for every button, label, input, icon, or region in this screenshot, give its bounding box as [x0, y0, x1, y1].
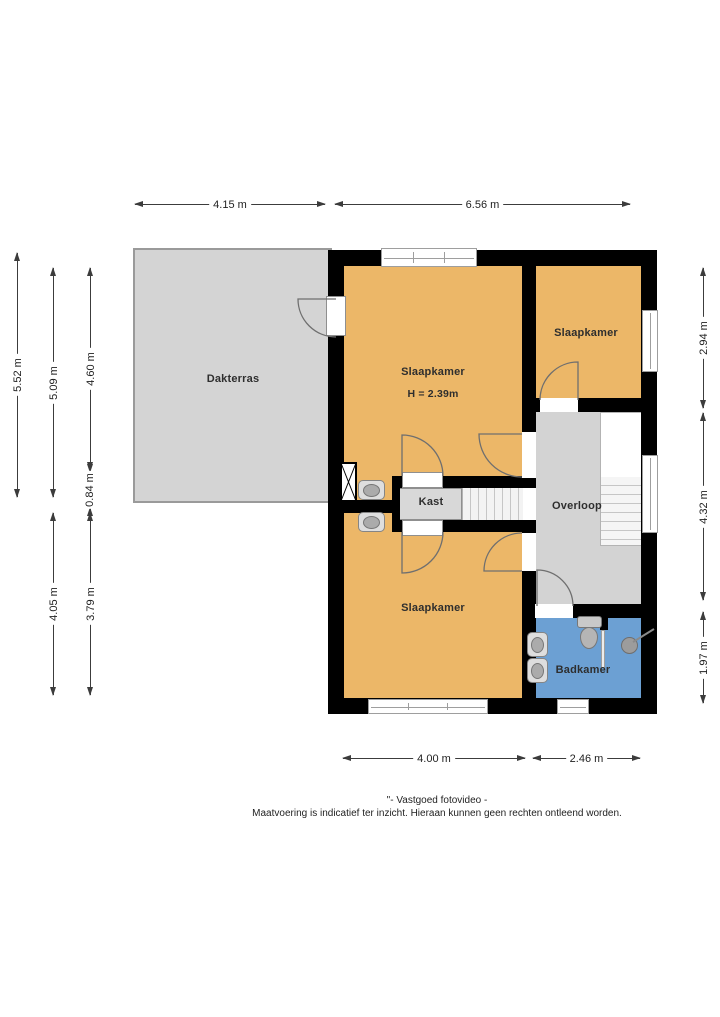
window-right-bedroom [642, 310, 658, 372]
window-tick [408, 703, 409, 710]
window-badkamer [557, 699, 589, 714]
label-badkamer: Badkamer [556, 664, 611, 676]
wall-badkamer-north-a [522, 604, 535, 618]
door-panel-dakterras [326, 296, 346, 336]
door-panel-kast-top [402, 472, 443, 488]
door-gap-badkamer [535, 604, 573, 618]
dim-left-405: 4.05 m [53, 513, 54, 695]
dim-label: 4.60 m [85, 348, 97, 390]
dim-label: 4.00 m [413, 753, 455, 765]
dim-right-294: 2.94 m [703, 268, 704, 408]
arrow-icon [700, 695, 706, 704]
wall-kast-west [392, 476, 400, 532]
arrow-icon [532, 755, 541, 761]
staircase-steps [601, 477, 641, 545]
arrow-icon [700, 592, 706, 601]
arrow-icon [317, 201, 326, 207]
window-tick [447, 703, 448, 710]
wall-overloop-west-1 [522, 398, 536, 432]
footer-disclaimer: Maatvoering is indicatief ter inzicht. H… [252, 808, 622, 819]
window-stairwell [642, 455, 658, 533]
dim-label: 4.32 m [698, 486, 710, 528]
arrow-icon [342, 755, 351, 761]
dim-label: 2.94 m [698, 317, 710, 359]
shower-head [621, 637, 638, 654]
dim-left-509: 5.09 m [53, 268, 54, 497]
sink-badkamer-1-bowl [531, 637, 544, 653]
floorplan-canvas: Dakterras Slaapkamer H = 2.39m Slaapkame… [0, 0, 720, 1017]
dim-label: 5.52 m [12, 354, 24, 396]
arrow-icon [134, 201, 143, 207]
wall-right-bedroom-south-b [578, 398, 657, 412]
duct-shaft [340, 462, 357, 502]
dim-left-084-label: 0.84 m [84, 471, 96, 509]
label-slaapkamer-main-height: H = 2.39m [407, 388, 458, 400]
window-rail [650, 313, 651, 369]
wall-top [328, 250, 657, 266]
arrow-icon [50, 489, 56, 498]
dim-bottom-400: 4.00 m [343, 758, 525, 759]
label-overloop: Overloop [552, 500, 602, 512]
arrow-icon [700, 412, 706, 421]
footer-brand: "- Vastgoed fotovideo - [387, 795, 488, 806]
dim-label: 2.46 m [566, 753, 608, 765]
label-slaapkamer-right: Slaapkamer [554, 327, 618, 339]
label-slaapkamer-bottom: Slaapkamer [401, 602, 465, 614]
arrow-icon [87, 267, 93, 276]
dim-left-084-stub-top [90, 448, 91, 472]
window-rail [371, 707, 485, 708]
dim-label: 1.97 m [698, 637, 710, 679]
arrow-icon [14, 489, 20, 498]
label-kast: Kast [419, 496, 444, 508]
door-panel-kast-bottom [402, 520, 443, 536]
dim-bottom-246: 2.46 m [533, 758, 640, 759]
dim-left-379: 3.79 m [90, 513, 91, 695]
wall-overloop-west-4 [522, 571, 536, 604]
arrow-icon [700, 611, 706, 620]
dim-right-197: 1.97 m [703, 612, 704, 703]
door-gap-slaapkamer-right [540, 398, 578, 412]
arrow-icon [632, 755, 641, 761]
arrow-icon [622, 201, 631, 207]
arrow-icon [700, 400, 706, 409]
staircase-main [600, 412, 642, 546]
dim-label: 4.05 m [48, 583, 60, 625]
dim-label: 3.79 m [85, 583, 97, 625]
window-rail [384, 258, 474, 259]
arrow-icon [14, 252, 20, 261]
arrow-icon [50, 267, 56, 276]
label-slaapkamer-main: Slaapkamer [401, 366, 465, 378]
dim-label: 5.09 m [48, 362, 60, 404]
arrow-icon [50, 512, 56, 521]
wall-bedrooms-divider [522, 266, 536, 398]
sink-bedroom-top-bowl [363, 484, 380, 497]
label-dakterras: Dakterras [207, 373, 260, 385]
arrow-icon [334, 201, 343, 207]
door-gap-slaapkamer-main [522, 432, 536, 478]
sink-badkamer-2-bowl [531, 663, 544, 679]
wall-sink-niche [328, 500, 392, 513]
arrow-icon [517, 755, 526, 761]
shower-partition [601, 630, 605, 668]
dim-top-terrace: 4.15 m [135, 204, 325, 205]
window-top [381, 248, 477, 267]
staircase-upper-steps [462, 488, 523, 520]
arrow-icon [87, 512, 93, 521]
window-tick [413, 252, 414, 263]
sink-bedroom-bottom-bowl [363, 516, 380, 529]
dim-label: 4.15 m [209, 199, 251, 211]
dim-top-house: 6.56 m [335, 204, 630, 205]
dim-right-432: 4.32 m [703, 413, 704, 600]
dim-left-460: 4.60 m [90, 268, 91, 470]
arrow-icon [87, 687, 93, 696]
window-rail [560, 707, 586, 708]
arrow-icon [700, 267, 706, 276]
arrow-icon [50, 687, 56, 696]
window-bottom-bedroom [368, 699, 488, 714]
dim-label: 6.56 m [462, 199, 504, 211]
dim-left-552: 5.52 m [17, 253, 18, 497]
window-tick [444, 252, 445, 263]
window-rail [650, 458, 651, 530]
door-gap-slaapkamer-bottom [522, 533, 536, 571]
